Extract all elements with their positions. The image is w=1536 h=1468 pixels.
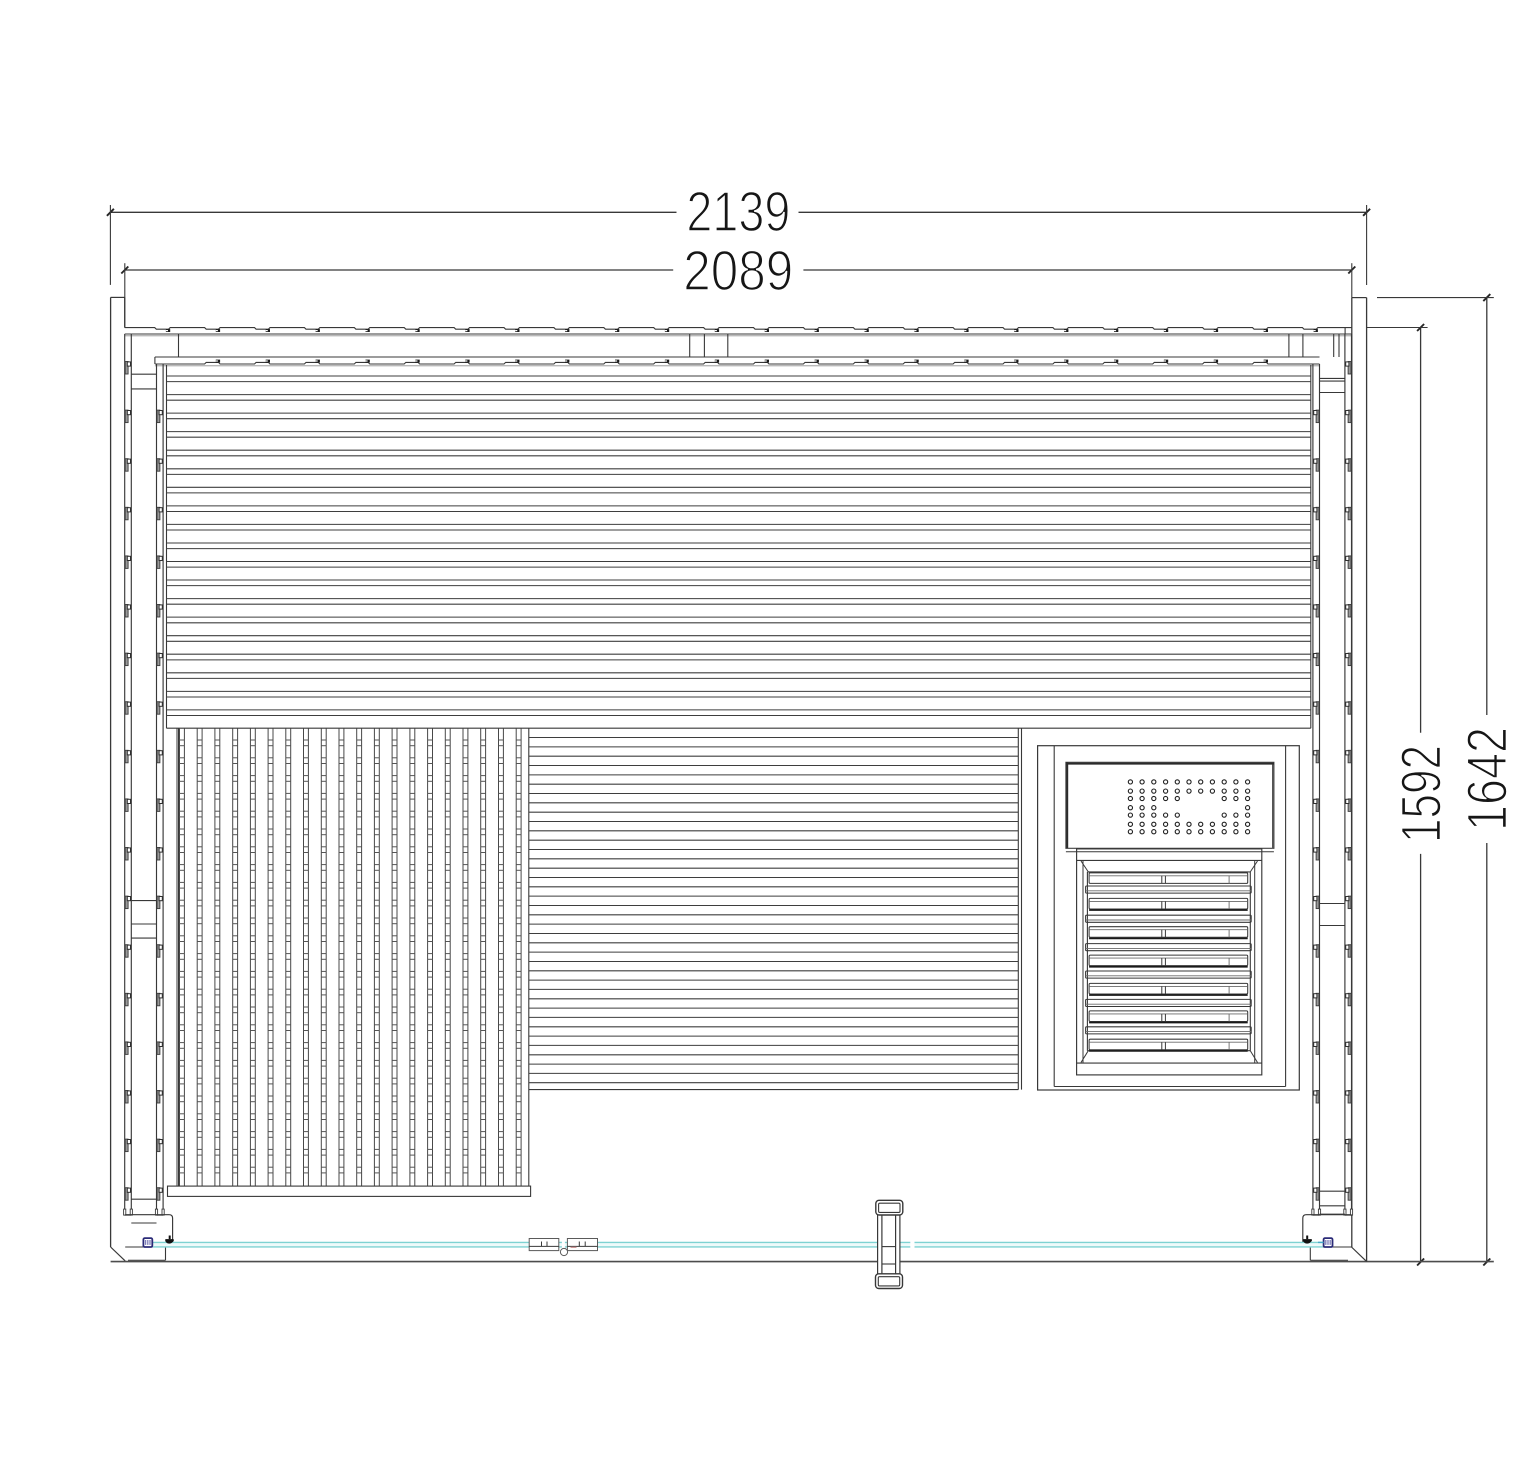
svg-text:2139: 2139 [686, 180, 790, 244]
svg-text:1592: 1592 [1389, 745, 1453, 843]
svg-text:2089: 2089 [683, 239, 793, 303]
svg-text:1642: 1642 [1456, 727, 1520, 831]
